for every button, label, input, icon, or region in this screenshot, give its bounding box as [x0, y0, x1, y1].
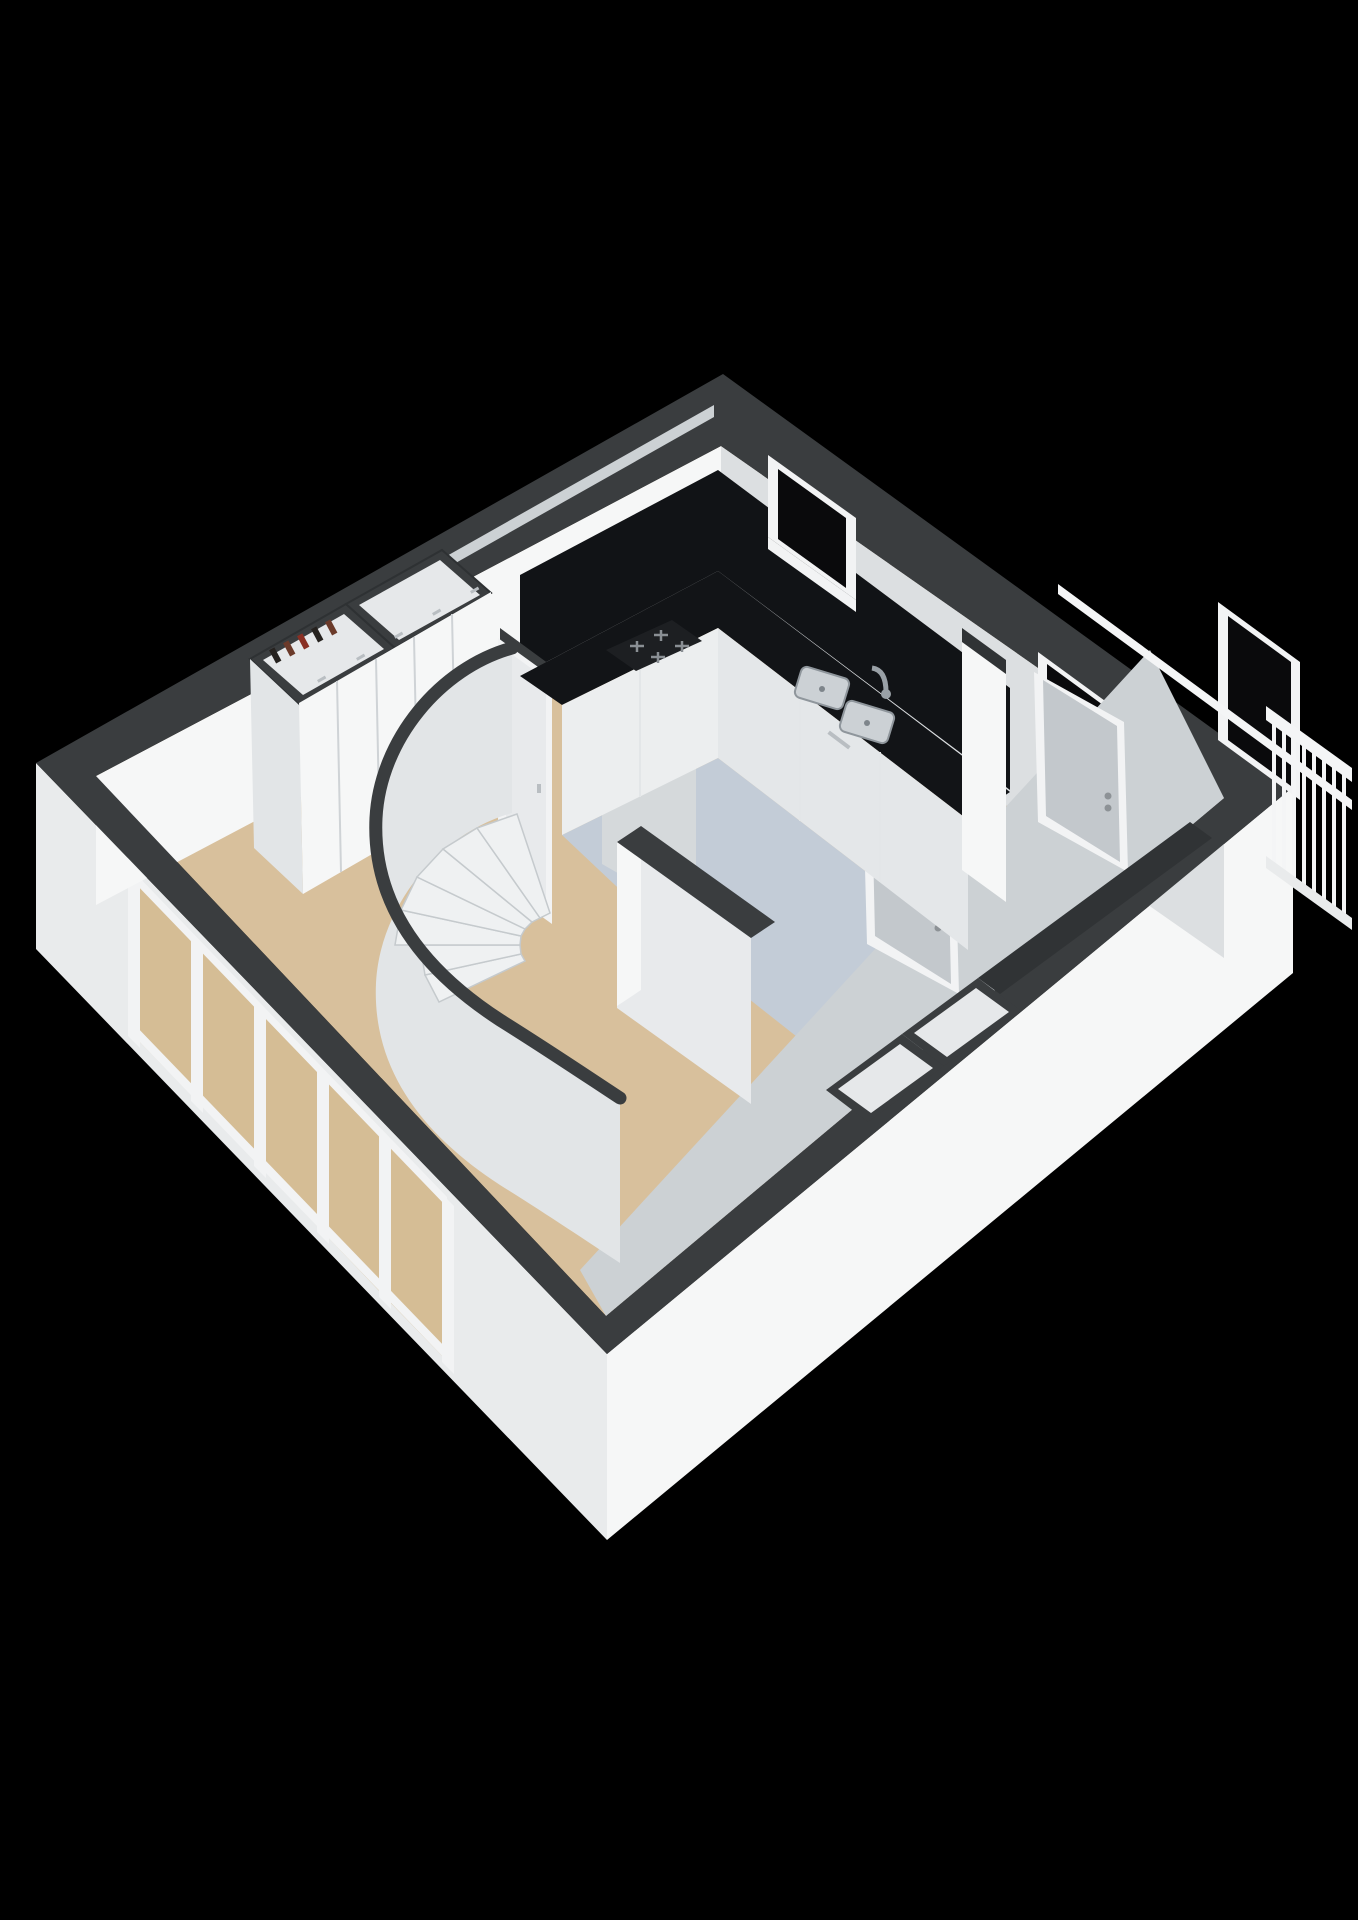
- baluster: [1292, 738, 1296, 884]
- sink-drain: [864, 720, 870, 726]
- door-handle: [1105, 793, 1112, 800]
- door-handle: [1105, 805, 1112, 812]
- baluster: [1302, 745, 1306, 891]
- door-handle: [537, 784, 541, 793]
- sink-drain: [819, 686, 825, 692]
- baluster: [1312, 752, 1316, 898]
- baluster: [1272, 724, 1276, 870]
- baluster: [1332, 767, 1336, 913]
- faucet-base: [881, 689, 891, 699]
- window-mullion: [128, 868, 140, 1048]
- kitchen-partition-wall: [962, 628, 1006, 902]
- baluster: [1282, 731, 1286, 877]
- baluster: [1322, 760, 1326, 906]
- floorplan-3d-render: [0, 0, 1358, 1920]
- wall-face: [962, 640, 1006, 902]
- baluster: [1342, 774, 1346, 920]
- floorplan-canvas: [0, 0, 1358, 1920]
